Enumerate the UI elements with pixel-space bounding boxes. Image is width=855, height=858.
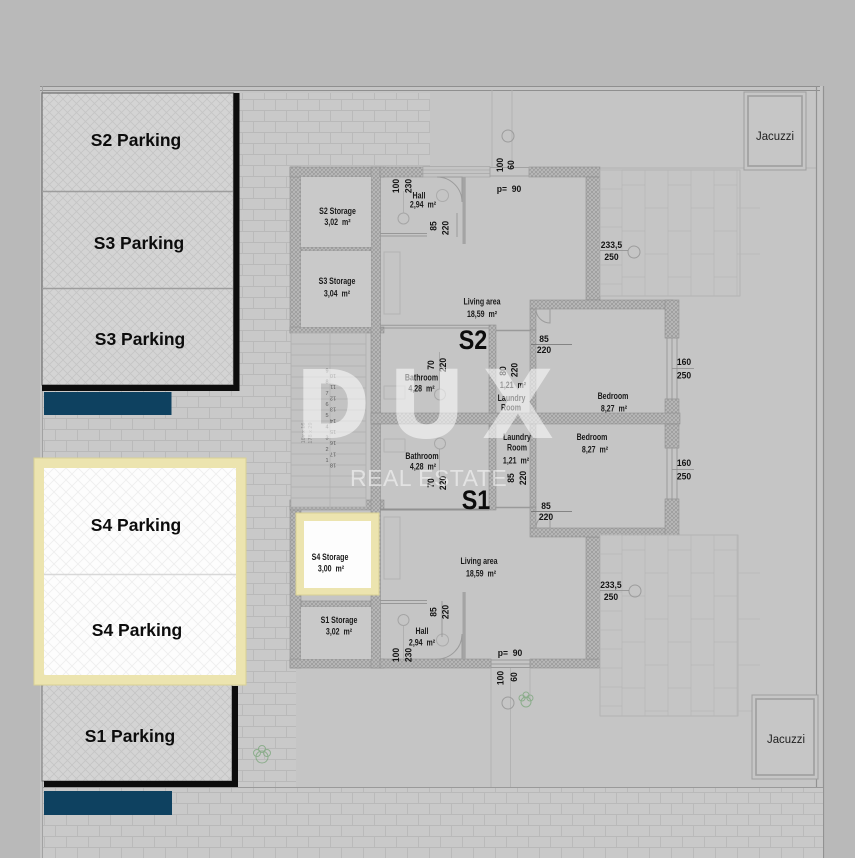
svg-text:233,5: 233,5 bbox=[600, 580, 621, 590]
svg-text:p= 90: p= 90 bbox=[498, 648, 523, 658]
svg-text:S4 Parking: S4 Parking bbox=[92, 620, 182, 640]
svg-text:230: 230 bbox=[403, 179, 413, 193]
svg-text:REAL ESTATE: REAL ESTATE bbox=[350, 465, 507, 491]
svg-text:p= 90: p= 90 bbox=[497, 184, 522, 194]
svg-text:85: 85 bbox=[428, 607, 438, 617]
svg-text:85: 85 bbox=[506, 473, 516, 483]
svg-text:220: 220 bbox=[539, 512, 553, 522]
svg-text:S3 Parking: S3 Parking bbox=[95, 329, 185, 349]
svg-text:233,5: 233,5 bbox=[601, 240, 622, 250]
svg-text:Living area: Living area bbox=[463, 297, 501, 307]
svg-text:100: 100 bbox=[391, 648, 401, 662]
svg-text:3,04 m²: 3,04 m² bbox=[324, 289, 350, 299]
svg-text:220: 220 bbox=[440, 605, 450, 619]
svg-text:S1 Storage: S1 Storage bbox=[321, 615, 358, 625]
svg-text:85: 85 bbox=[539, 334, 549, 344]
svg-text:160: 160 bbox=[677, 458, 691, 468]
svg-text:100: 100 bbox=[495, 671, 505, 685]
svg-text:250: 250 bbox=[677, 370, 691, 380]
svg-text:160: 160 bbox=[677, 357, 691, 367]
svg-text:S4 Parking: S4 Parking bbox=[91, 515, 181, 535]
svg-text:Living area: Living area bbox=[460, 556, 498, 566]
svg-text:Jacuzzi: Jacuzzi bbox=[756, 130, 794, 143]
svg-text:8,27 m²: 8,27 m² bbox=[601, 404, 627, 414]
svg-text:100: 100 bbox=[391, 179, 401, 193]
svg-text:S3 Parking: S3 Parking bbox=[94, 233, 184, 253]
svg-text:Bedroom: Bedroom bbox=[598, 391, 629, 401]
svg-text:1: 1 bbox=[325, 458, 328, 464]
svg-text:Bedroom: Bedroom bbox=[577, 432, 608, 442]
svg-text:230: 230 bbox=[403, 648, 413, 662]
svg-text:85: 85 bbox=[541, 501, 551, 511]
svg-text:250: 250 bbox=[677, 471, 691, 481]
svg-text:DUX: DUX bbox=[299, 351, 575, 457]
svg-text:3,00 m²: 3,00 m² bbox=[318, 564, 344, 574]
svg-text:Jacuzzi: Jacuzzi bbox=[767, 733, 805, 746]
svg-text:60: 60 bbox=[509, 672, 519, 682]
svg-text:2,94 m²: 2,94 m² bbox=[410, 200, 436, 210]
svg-text:60: 60 bbox=[506, 160, 516, 170]
svg-text:2,94 m²: 2,94 m² bbox=[409, 638, 435, 648]
svg-text:S2 Parking: S2 Parking bbox=[91, 130, 181, 150]
svg-text:18,59 m²: 18,59 m² bbox=[467, 309, 497, 319]
svg-text:3,02 m²: 3,02 m² bbox=[326, 627, 352, 637]
svg-text:Hall: Hall bbox=[416, 626, 429, 636]
svg-text:18: 18 bbox=[330, 462, 336, 468]
svg-text:250: 250 bbox=[604, 252, 618, 262]
svg-text:220: 220 bbox=[440, 221, 450, 235]
svg-text:8,27 m²: 8,27 m² bbox=[582, 445, 608, 455]
svg-text:18,59 m²: 18,59 m² bbox=[466, 569, 496, 579]
svg-text:85: 85 bbox=[428, 221, 438, 231]
svg-text:100: 100 bbox=[495, 158, 505, 172]
svg-text:220: 220 bbox=[518, 471, 528, 485]
svg-text:250: 250 bbox=[604, 592, 618, 602]
svg-text:S2 Storage: S2 Storage bbox=[319, 206, 356, 216]
svg-text:S1 Parking: S1 Parking bbox=[85, 726, 175, 746]
svg-text:3,02 m²: 3,02 m² bbox=[324, 217, 350, 227]
svg-text:S3 Storage: S3 Storage bbox=[319, 276, 356, 286]
svg-text:S4 Storage: S4 Storage bbox=[312, 552, 349, 562]
